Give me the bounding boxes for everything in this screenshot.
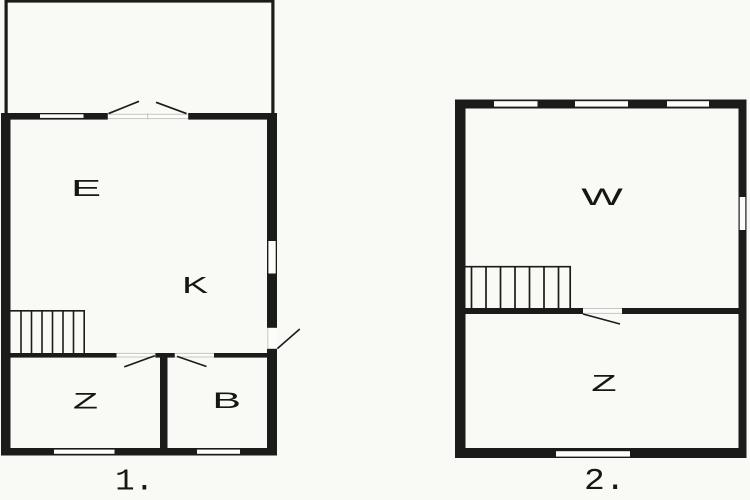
svg-text:Z: Z [591,371,616,397]
svg-text:1.: 1. [115,464,154,499]
svg-text:K: K [182,272,209,298]
svg-text:2.: 2. [584,464,626,499]
svg-text:W: W [581,183,623,210]
svg-text:E: E [71,174,101,201]
svg-text:B: B [212,389,241,414]
svg-text:Z: Z [73,389,98,414]
